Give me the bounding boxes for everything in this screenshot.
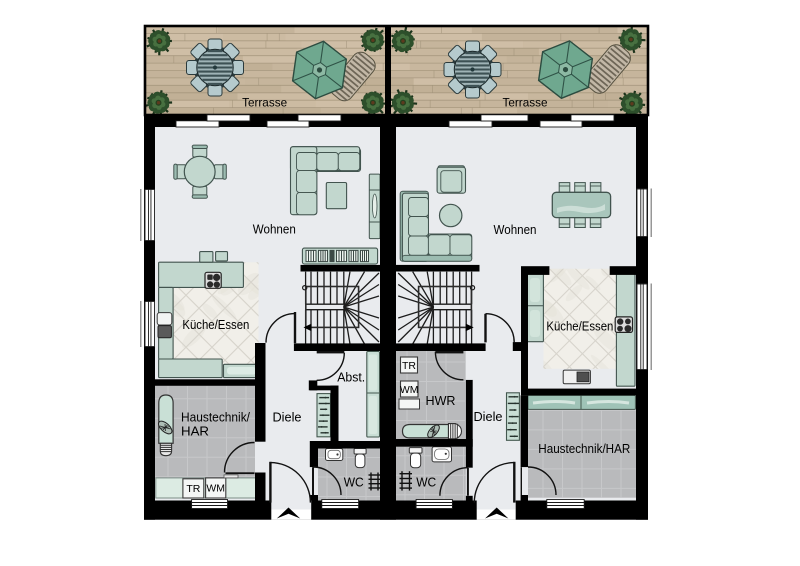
svg-text:Wohnen: Wohnen [494, 223, 537, 237]
svg-text:Haustechnik/HAR: Haustechnik/HAR [538, 442, 630, 456]
svg-text:Küche/Essen: Küche/Essen [546, 319, 613, 333]
svg-text:Abst.: Abst. [337, 371, 365, 385]
svg-text:WC: WC [344, 475, 364, 489]
svg-text:Terrasse: Terrasse [242, 95, 287, 109]
svg-text:Haustechnik/: Haustechnik/ [181, 410, 250, 424]
svg-text:TR: TR [186, 483, 200, 495]
svg-text:Terrasse: Terrasse [503, 95, 548, 109]
svg-text:HAR: HAR [181, 424, 209, 438]
svg-text:WM: WM [206, 483, 225, 495]
svg-text:Wohnen: Wohnen [253, 223, 296, 237]
svg-text:Diele: Diele [273, 411, 302, 425]
svg-text:TR: TR [402, 360, 416, 372]
svg-text:HWR: HWR [426, 394, 456, 408]
svg-text:Küche/Essen: Küche/Essen [182, 318, 249, 332]
svg-text:WC: WC [416, 475, 436, 489]
svg-text:Diele: Diele [474, 410, 503, 424]
svg-text:WM: WM [400, 384, 419, 396]
